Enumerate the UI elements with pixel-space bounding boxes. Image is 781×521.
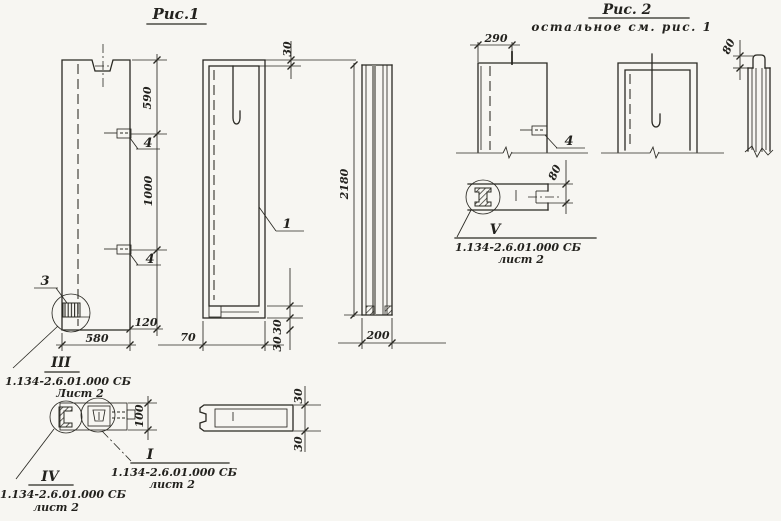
front-panel-opening: [209, 66, 259, 306]
drawing-sheet: Рис.1: [0, 0, 781, 521]
fig2-rear-fitting: [520, 126, 585, 148]
tag-1-label: 1: [282, 217, 291, 232]
fig2-detail-strip: 80: [457, 160, 573, 237]
callout-v: V 1.134-2.6.01.000 СБ лист 2: [455, 222, 596, 266]
callout-iii-num: III: [50, 355, 71, 371]
leader-to-callout-i: [102, 431, 131, 461]
fig2-subtitle: остальное см. рис. 1: [531, 20, 712, 34]
tag-3-label: 3: [40, 274, 49, 289]
fig2-front-opening: [625, 70, 690, 150]
fig1-title: Рис.1: [152, 5, 200, 23]
fig1-rear-view: 590 1000 4 4 3 120 580: [13, 44, 167, 368]
dim-1000-label: 1000: [142, 175, 155, 206]
fig2-rear-view: 290 4: [456, 32, 588, 158]
callout-v-sheet: лист 2: [498, 253, 544, 266]
figure-1: Рис.1: [0, 5, 446, 514]
dim-580-label: 580: [86, 332, 109, 345]
fig1-side-view: 2180 200: [338, 62, 446, 350]
fig1-front-view: 30 1 70 30 30: [158, 41, 356, 352]
fig2-side-view: 80: [720, 37, 773, 157]
dim-80-side-label: 80: [720, 37, 738, 57]
callout-iii: III 1.134-2.6.01.000 СБ Лист 2: [5, 355, 132, 400]
front-panel-outline: [203, 60, 265, 318]
dim-30-plan-bot-label: 30: [292, 436, 305, 452]
dim-200-label: 200: [366, 329, 390, 342]
tag-4-lower: 4: [145, 252, 154, 267]
fig1-plan-section: 30 30: [200, 386, 321, 452]
side-bottom-key-left: [366, 306, 374, 315]
callout-v-num: V: [490, 222, 503, 238]
figure-2: Рис. 2 остальное см. рис. 1 290: [455, 2, 773, 266]
rear-panel-outline: [62, 60, 130, 330]
ibeam-profile: [475, 188, 491, 206]
embedded-part-3: [63, 303, 80, 317]
dim-120-label: 120: [135, 316, 158, 329]
dim-30-b-label: 30: [271, 336, 284, 352]
dim-590-label: 590: [141, 86, 154, 109]
dim-70-label: 70: [180, 331, 196, 344]
dim-30-plan-top-label: 30: [292, 388, 305, 404]
fig2-front-ground: [601, 147, 724, 158]
fig2-front-view: [601, 54, 724, 158]
dim-30-top-label: 30: [281, 41, 294, 57]
front-corner-key: [209, 306, 221, 317]
front-dimensions: [158, 41, 356, 351]
callout-i-sheet: лист 2: [149, 478, 195, 491]
side-groove-band: [372, 65, 376, 315]
callout-iii-sheet: Лист 2: [55, 387, 104, 400]
callout-iv-doc: 1.134-2.6.01.000 СБ: [0, 488, 127, 501]
fig2-side-break: [745, 146, 773, 157]
dim-100-label: 100: [133, 404, 146, 427]
lifting-loop: [233, 66, 240, 124]
dim-290-label: 290: [484, 32, 508, 45]
callout-i: I 1.134-2.6.01.000 СБ лист 2: [111, 447, 238, 491]
plan-core: [215, 409, 287, 427]
callout-iv-num: IV: [40, 469, 61, 485]
fig2-title: Рис. 2: [602, 2, 652, 18]
fig2-title-block: Рис. 2 остальное см. рис. 1: [531, 2, 712, 34]
callout-i-num: I: [146, 447, 154, 463]
fig1-title-block: Рис.1: [147, 5, 206, 24]
dim-30-a-label: 30: [271, 319, 284, 335]
fig2-lifting-loop: [652, 54, 660, 127]
drawing-canvas: Рис.1: [0, 0, 781, 521]
tag-4-fig2: 4: [564, 134, 573, 149]
detail-channel-profile: [59, 407, 72, 427]
fig2-loop-stub: [753, 55, 765, 68]
dim-80-detail-label: 80: [546, 163, 564, 183]
fig2-rear-outline: [478, 63, 547, 152]
side-bottom-key-right: [385, 306, 392, 315]
callout-iv-sheet: лист 2: [33, 501, 79, 514]
leader-to-callout-v: [457, 210, 471, 237]
detail-circle-iv: [50, 401, 82, 433]
dim-2180-label: 2180: [338, 168, 351, 200]
tag-4-upper: 4: [143, 136, 152, 151]
